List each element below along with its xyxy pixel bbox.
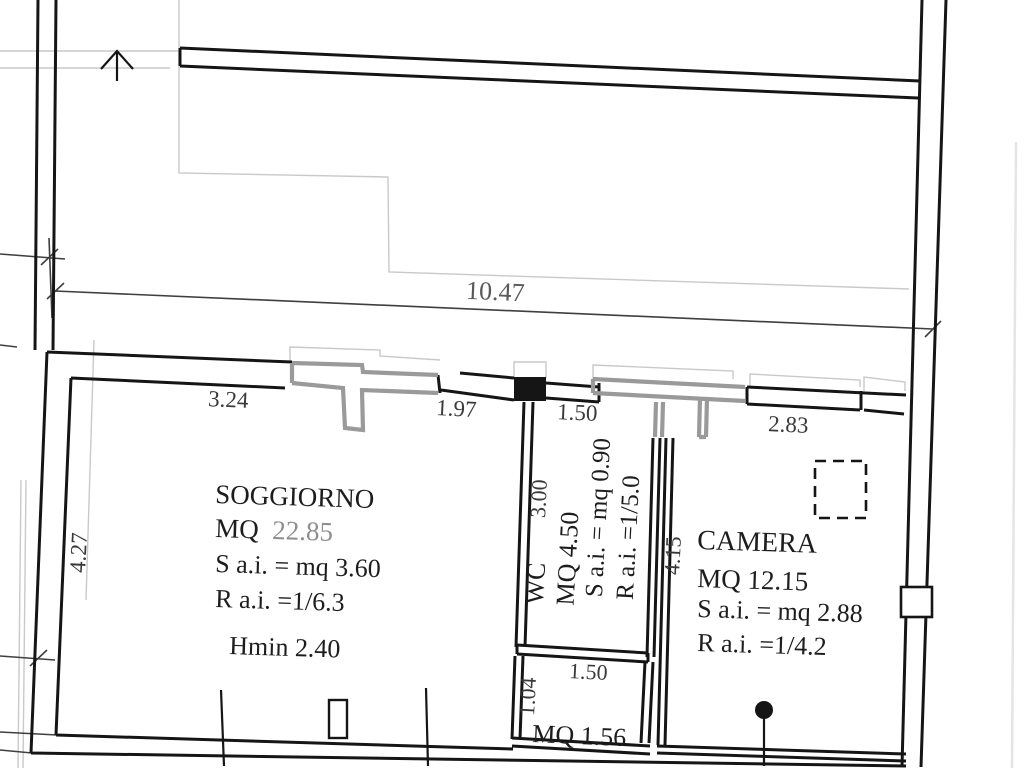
room-label-camera: CAMERA <box>697 525 818 560</box>
north-arrow-icon <box>101 51 133 81</box>
camera-rai: R a.i. =1/4.2 <box>697 628 827 661</box>
soggiorno-hmin: Hmin 2.40 <box>229 631 341 663</box>
dimension-lines <box>0 238 941 753</box>
soggiorno-area-value: 22.85 <box>272 515 334 547</box>
room-label-soggiorno: SOGGIORNO <box>215 479 375 514</box>
soggiorno-area-prefix: MQ <box>215 513 260 544</box>
dim-camera-depth: 4.15 <box>659 536 686 576</box>
camera-sai: S a.i. = mq 2.88 <box>697 594 863 628</box>
pipe-marker-icon <box>755 701 773 719</box>
room-label-wc: WC <box>520 562 551 605</box>
wc-rai: R a.i. =1/5.0 <box>612 475 645 601</box>
right-wall-window-marker <box>901 587 932 617</box>
page-edge-line <box>1012 142 1016 768</box>
dim-small-room-depth: 1.04 <box>514 677 541 717</box>
wc-sai: S a.i. = mq 0.90 <box>581 437 616 597</box>
floor-plan-svg: 10.47 3.24 1.97 1.50 2.83 4.27 3.00 4.15… <box>0 0 1024 768</box>
floor-plan: 10.47 3.24 1.97 1.50 2.83 4.27 3.00 4.15… <box>0 0 1024 768</box>
dim-wc-depth: 3.00 <box>525 479 552 519</box>
dim-small-room-width: 1.50 <box>569 658 609 685</box>
skylight-dashed-outline <box>815 461 866 518</box>
wall-pillar <box>514 377 546 401</box>
wc-area: MQ 4.50 <box>551 511 585 606</box>
camera-area: MQ 12.15 <box>697 563 809 596</box>
bottom-wall-pilaster <box>329 700 347 738</box>
soggiorno-rai: R a.i. =1/6.3 <box>215 584 345 617</box>
dim-soggiorno-width-left: 3.24 <box>208 386 250 413</box>
small-room-area: MQ 1.56 <box>532 719 627 752</box>
dim-camera-width: 2.83 <box>768 411 809 438</box>
dim-soggiorno-width-right: 1.97 <box>436 395 478 422</box>
soggiorno-sai: S a.i. = mq 3.60 <box>215 549 381 583</box>
dim-wc-width: 1.50 <box>557 399 598 426</box>
dim-overall-width: 10.47 <box>466 276 526 308</box>
dim-soggiorno-depth: 4.27 <box>65 532 92 574</box>
